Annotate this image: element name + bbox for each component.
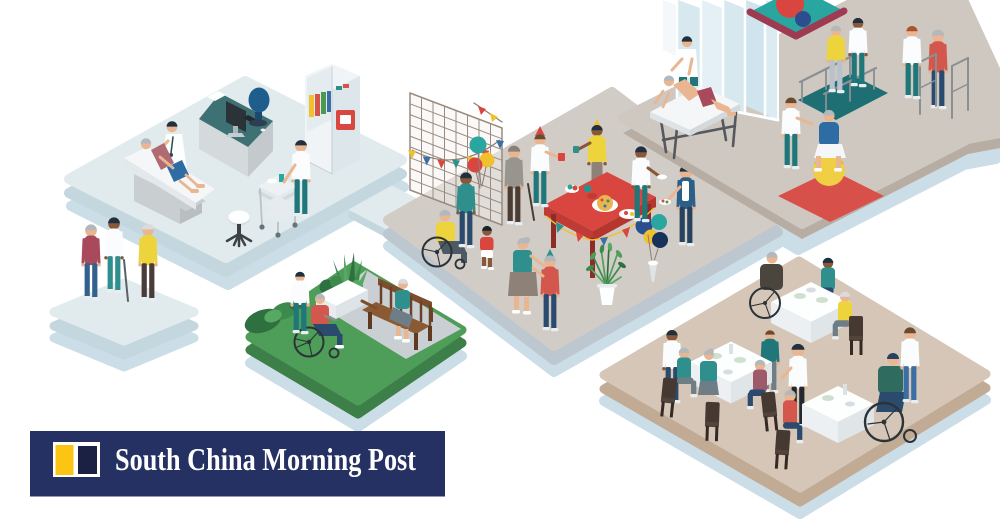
svg-text:South China Morning Post: South China Morning Post [115, 441, 416, 477]
